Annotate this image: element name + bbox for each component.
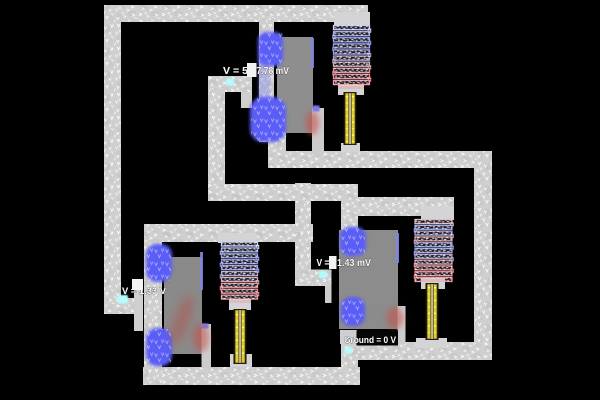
svg-text:1.43 mV: 1.43 mV: [337, 257, 371, 269]
svg-text:Ground = 0 V: Ground = 0 V: [344, 335, 397, 346]
svg-text:7.78 mV: 7.78 mV: [257, 65, 290, 77]
svg-text:V = 1.33 V: V = 1.33 V: [122, 286, 167, 297]
svg-text:V = 5: V = 5: [223, 65, 248, 77]
svg-text:V =: V =: [317, 257, 330, 269]
